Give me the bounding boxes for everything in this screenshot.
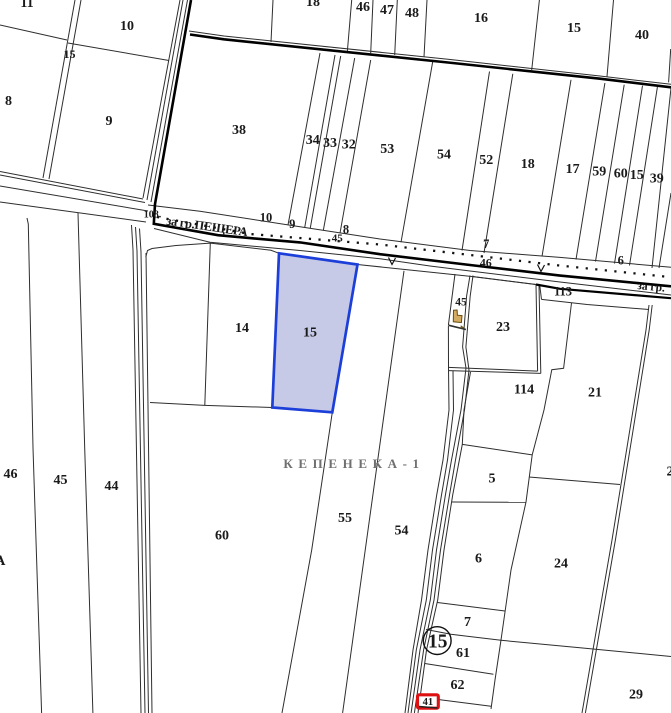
svg-text:54: 54 bbox=[395, 524, 409, 539]
svg-text:7: 7 bbox=[483, 237, 489, 251]
svg-text:34: 34 bbox=[306, 133, 320, 148]
svg-text:53: 53 bbox=[380, 142, 394, 157]
svg-text:23: 23 bbox=[496, 320, 510, 335]
svg-text:17: 17 bbox=[566, 162, 580, 177]
svg-text:КЕПЕНЕКА-1: КЕПЕНЕКА-1 bbox=[283, 456, 424, 471]
svg-text:46: 46 bbox=[480, 256, 492, 270]
svg-text:108.: 108. bbox=[144, 210, 162, 221]
svg-text:11: 11 bbox=[20, 0, 33, 11]
svg-text:48: 48 bbox=[405, 6, 419, 21]
svg-text:15: 15 bbox=[64, 47, 76, 61]
svg-text:21: 21 bbox=[588, 386, 602, 401]
svg-text:61: 61 bbox=[456, 646, 470, 661]
svg-text:55: 55 bbox=[338, 511, 352, 526]
svg-text:16: 16 bbox=[474, 11, 488, 26]
svg-text:38: 38 bbox=[232, 123, 246, 138]
svg-text:8: 8 bbox=[343, 223, 349, 237]
svg-text:5: 5 bbox=[489, 472, 496, 487]
svg-text:15: 15 bbox=[428, 632, 448, 653]
svg-text:29: 29 bbox=[629, 688, 643, 703]
svg-text:9: 9 bbox=[106, 114, 113, 129]
svg-text:А: А bbox=[0, 553, 6, 569]
svg-text:15: 15 bbox=[303, 326, 317, 341]
svg-text:18: 18 bbox=[306, 0, 320, 10]
svg-text:14: 14 bbox=[235, 321, 249, 336]
svg-text:6: 6 bbox=[618, 253, 624, 267]
svg-text:41: 41 bbox=[423, 697, 434, 708]
svg-text:33: 33 bbox=[323, 136, 337, 151]
svg-text:46: 46 bbox=[4, 467, 18, 482]
svg-text:113: 113 bbox=[554, 285, 572, 299]
svg-text:7: 7 bbox=[464, 615, 471, 630]
svg-text:52: 52 bbox=[479, 153, 493, 168]
svg-text:60: 60 bbox=[614, 167, 628, 182]
svg-text:46: 46 bbox=[356, 0, 370, 15]
svg-text:9: 9 bbox=[289, 217, 295, 231]
svg-text:10: 10 bbox=[260, 211, 273, 225]
svg-text:59: 59 bbox=[592, 165, 606, 180]
svg-text:40: 40 bbox=[635, 28, 649, 43]
svg-text:10: 10 bbox=[120, 19, 134, 34]
svg-text:54: 54 bbox=[437, 148, 451, 163]
svg-text:15: 15 bbox=[630, 168, 644, 183]
svg-text:62: 62 bbox=[451, 678, 465, 693]
svg-text:47: 47 bbox=[380, 3, 394, 18]
svg-text:45: 45 bbox=[54, 473, 68, 488]
svg-text:45: 45 bbox=[332, 233, 344, 245]
svg-text:39: 39 bbox=[650, 172, 664, 187]
svg-text:24: 24 bbox=[554, 557, 568, 572]
svg-text:15: 15 bbox=[567, 21, 581, 36]
svg-text:6: 6 bbox=[475, 552, 482, 567]
svg-text:44: 44 bbox=[105, 479, 119, 494]
svg-text:18: 18 bbox=[521, 157, 535, 172]
svg-text:114: 114 bbox=[514, 383, 534, 398]
svg-text:32: 32 bbox=[342, 138, 356, 153]
svg-text:2: 2 bbox=[667, 465, 671, 480]
svg-text:8: 8 bbox=[5, 94, 12, 109]
svg-text:45: 45 bbox=[455, 297, 467, 309]
svg-text:60: 60 bbox=[215, 529, 229, 544]
